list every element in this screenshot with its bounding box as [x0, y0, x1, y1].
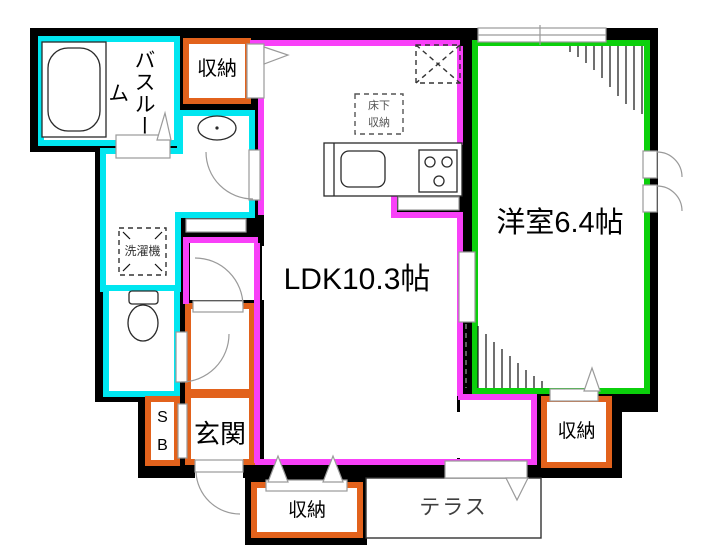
entrance-label: 玄関 — [185, 418, 255, 451]
terrace-label: テラス — [365, 495, 542, 521]
laundry-room — [103, 151, 178, 289]
western-room-top-window — [478, 25, 606, 45]
entrance-door — [195, 459, 243, 514]
storage-right-label: 収納 — [541, 420, 612, 444]
storage-top-label: 収納 — [183, 57, 251, 82]
bathtub — [42, 42, 106, 137]
western-room-side-window-2 — [643, 185, 682, 212]
laundry-wall-closet — [186, 219, 246, 232]
bathroom-label: バスルーム — [126, 42, 156, 144]
underfloor-storage-label: 床下 収納 — [355, 98, 403, 132]
shoe-box-label: S B — [145, 404, 180, 460]
storage-bottom-label: 収納 — [251, 499, 363, 523]
western-room-side-window-1 — [643, 151, 682, 178]
kitchen-counter — [324, 143, 462, 196]
toilet — [128, 291, 158, 341]
western-room-label: 洋室6.4帖 — [478, 205, 642, 241]
ldk-label: LDK10.3帖 — [265, 261, 449, 299]
washing-machine-label: 洗濯機 — [117, 244, 168, 259]
floor-plan: バスルーム 収納 洗濯機 床下 収納 LDK10.3帖 洋室6.4帖 S B 玄… — [0, 0, 702, 558]
kitchen-wall-opening — [398, 197, 459, 210]
